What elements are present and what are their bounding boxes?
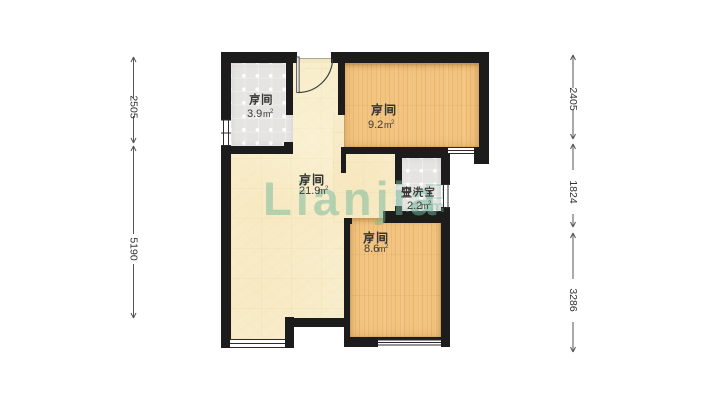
svg-text:3286: 3286 xyxy=(567,288,579,312)
svg-text:2: 2 xyxy=(385,244,389,250)
svg-text:1824: 1824 xyxy=(567,180,579,204)
svg-text:2: 2 xyxy=(270,109,274,115)
svg-text:8.6: 8.6 xyxy=(364,243,379,255)
svg-text:5190: 5190 xyxy=(128,237,140,261)
svg-text:3.9: 3.9 xyxy=(247,108,262,120)
svg-text:2: 2 xyxy=(391,120,395,126)
svg-text:2405: 2405 xyxy=(567,87,579,111)
svg-text:2505: 2505 xyxy=(128,95,140,119)
svg-text:9.2: 9.2 xyxy=(368,119,383,131)
svg-text:2.2: 2.2 xyxy=(407,200,422,212)
